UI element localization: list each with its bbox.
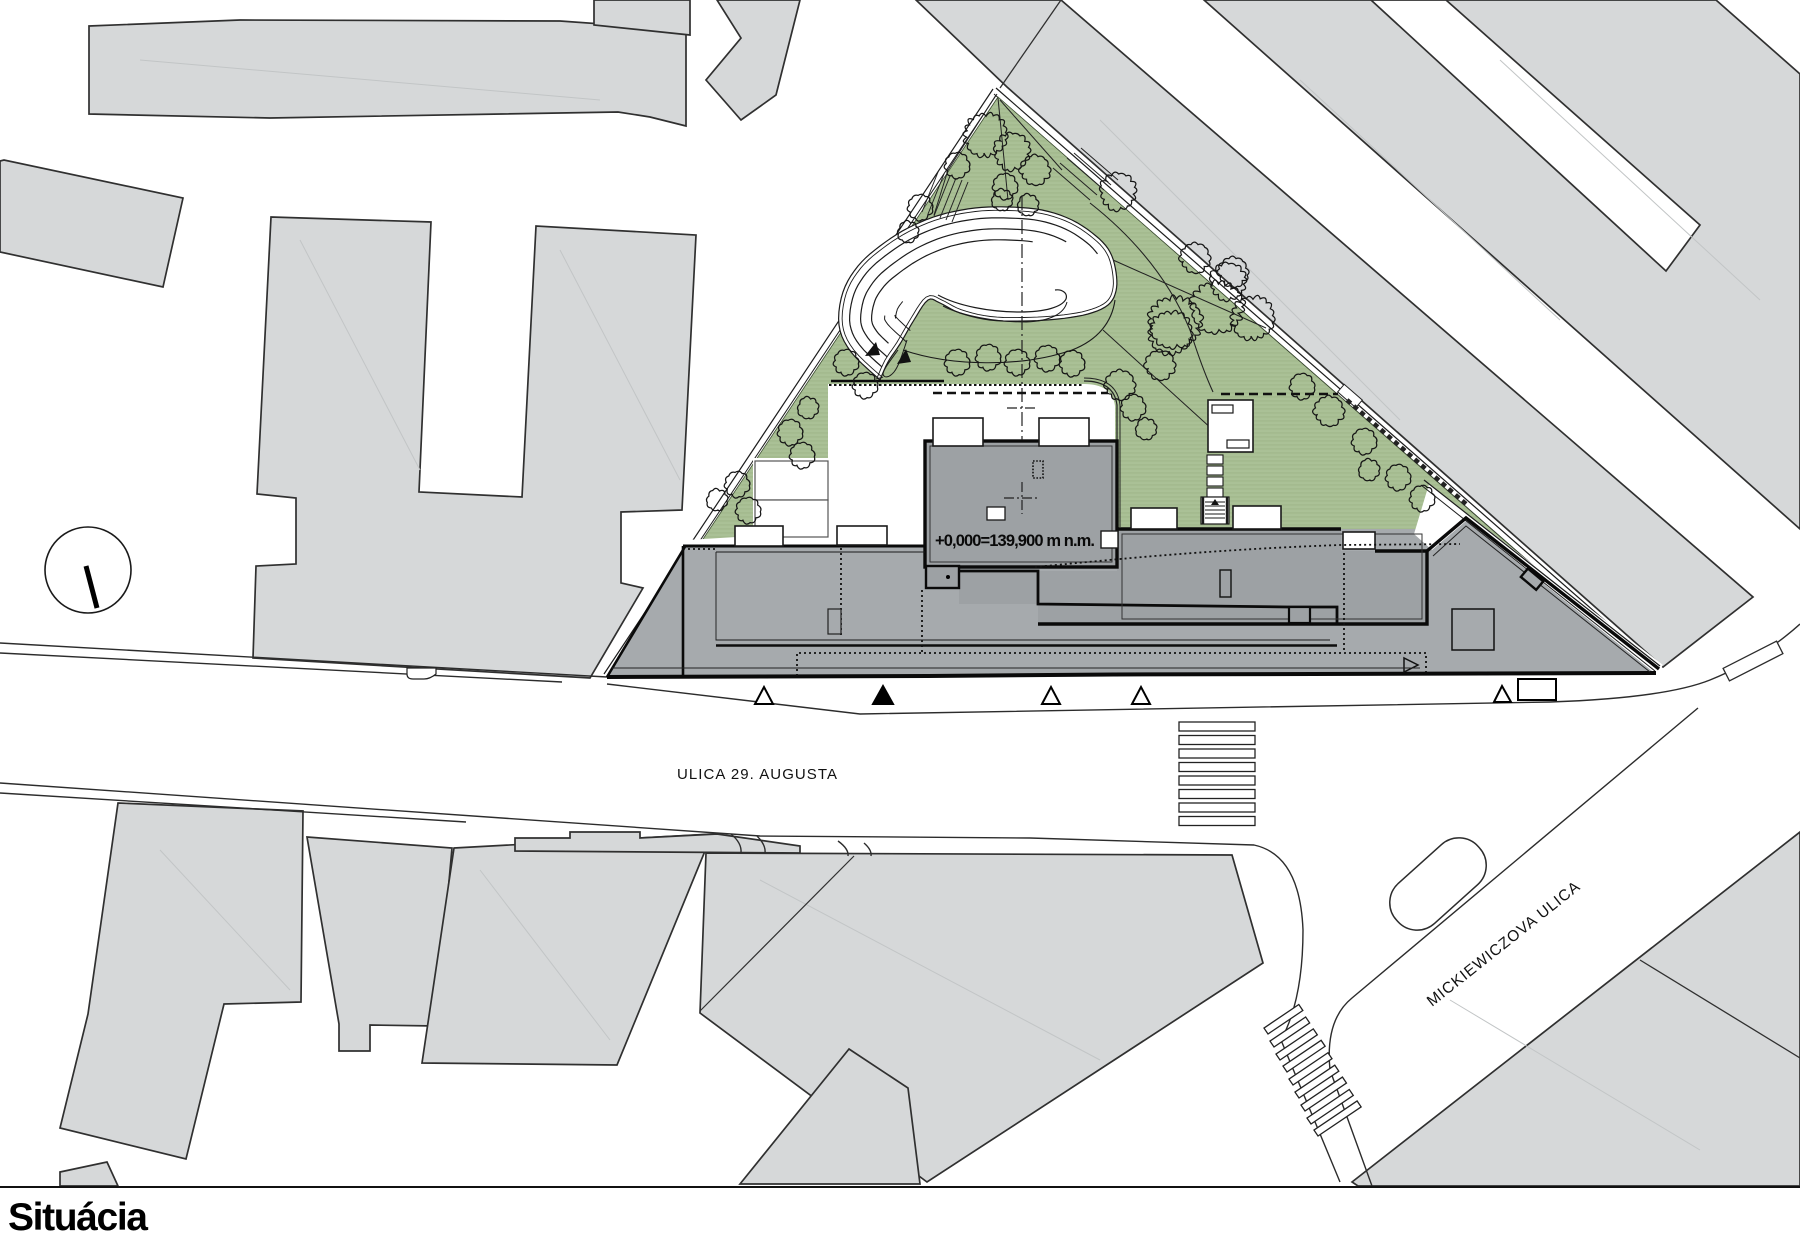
svg-text:+0,000=139,900 m n.m.: +0,000=139,900 m n.m. (935, 532, 1095, 550)
svg-text:ULICA 29. AUGUSTA: ULICA 29. AUGUSTA (677, 766, 837, 783)
svg-text:Situácia: Situácia (8, 1196, 148, 1239)
